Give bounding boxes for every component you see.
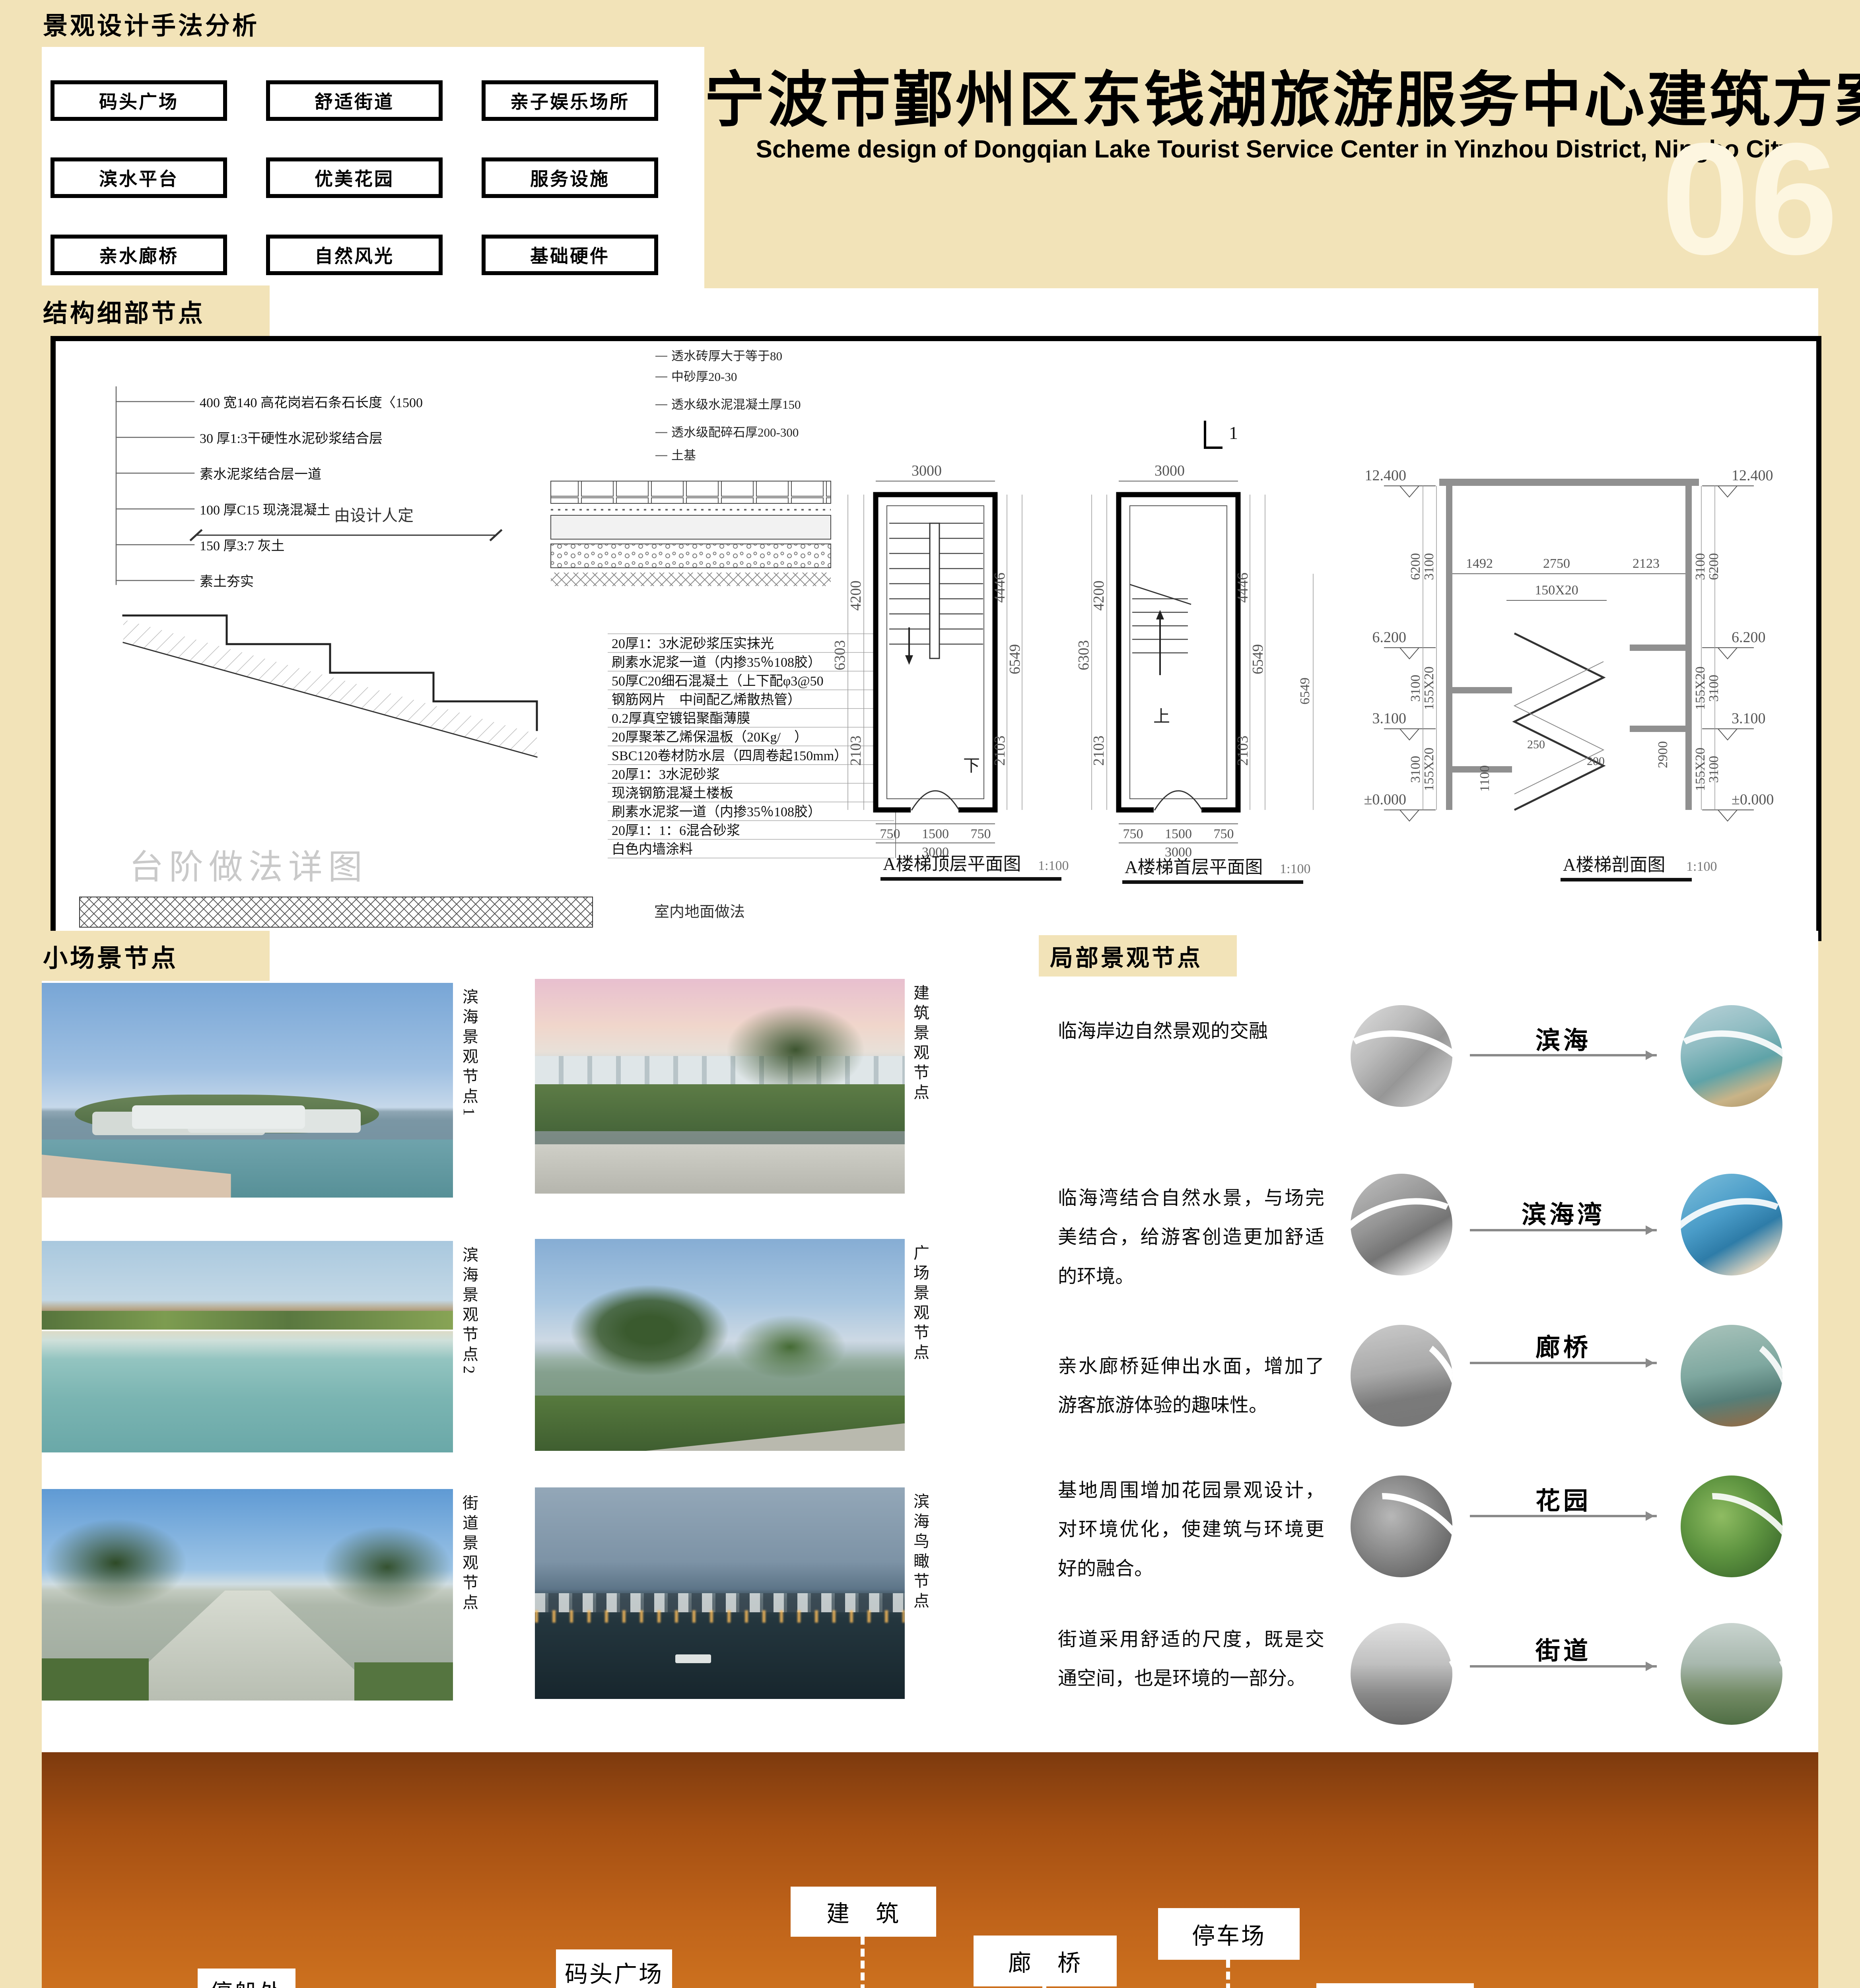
floor-layer-8: 20厚1：3水泥砂浆 [612, 767, 720, 782]
tag-wharf-plaza: 码头广场 [51, 80, 227, 121]
pano-label-park: 公 园 [1316, 1983, 1474, 1988]
level: ±0.000 [1732, 791, 1774, 808]
thumb-bw-garden [1351, 1475, 1452, 1577]
shore-lights [535, 1610, 905, 1623]
tree-2 [712, 1303, 868, 1392]
dim: 4446 [991, 573, 1008, 603]
thumb-bw-street [1351, 1623, 1452, 1725]
plan-top-label: A楼梯顶层平面图 [883, 854, 1021, 874]
level: 6.200 [1372, 629, 1407, 646]
local-text-4: 基地周围增加花园景观设计，对环境优化，使建筑与环境更好的融合。 [1058, 1471, 1324, 1588]
dim: 150X20 [1535, 583, 1578, 598]
dim: 2103 [1234, 736, 1251, 766]
thumb-color-bay [1681, 1174, 1782, 1276]
tag-infrastructure: 基础硬件 [482, 235, 658, 275]
render-seaside-node-2 [42, 1241, 453, 1452]
scene-caption-4: 建筑景观节点 [908, 984, 931, 1104]
section-label: A楼梯剖面图 [1563, 855, 1666, 875]
section-scale: 1:100 [1686, 859, 1717, 874]
dim: 6549 [1298, 678, 1312, 705]
local-label-3: 廊桥 [1470, 1327, 1657, 1363]
sunset-panorama [42, 1752, 1818, 1988]
floor-layer-4: 钢筋网片 中间配乙烯散热管） [612, 692, 801, 707]
tag-garden: 优美花园 [266, 157, 443, 198]
local-label-5: 街道 [1470, 1631, 1657, 1666]
tag-natural-scenery: 自然风光 [266, 235, 443, 275]
arrow-5 [1470, 1665, 1657, 1668]
curve [1351, 1623, 1452, 1725]
dim: 3100 [1422, 553, 1436, 580]
section-cut-mark: 1 [1229, 423, 1238, 443]
tag-comfort-street: 舒适街道 [266, 80, 443, 121]
arrow-4 [1470, 1515, 1657, 1517]
floor-layer-11: 20厚1：1：6混合砂浆 [612, 823, 740, 838]
dim: 2103 [1090, 736, 1107, 766]
level: 3.100 [1732, 710, 1766, 727]
lawn-left [42, 1658, 149, 1701]
floor-layer-5: 0.2厚真空镀铝聚酯薄膜 [612, 711, 750, 726]
dim: 6303 [832, 640, 848, 670]
leader-line [1042, 1986, 1046, 1988]
dim: 155X20 [1422, 747, 1436, 791]
thumb-bw-bay [1351, 1174, 1452, 1276]
local-text-3: 亲水廊桥延伸出水面，增加了游客旅游体验的趣味性。 [1058, 1347, 1324, 1425]
step-layer-4: 100 厚C15 现浇混凝土 [200, 503, 330, 518]
pave-layer-3: 透水级水泥混凝土厚150 [671, 398, 801, 412]
dim: 6303 [1075, 640, 1092, 670]
structure-drawings: 400 宽140 高花岗岩石条石长度〈1500 30 厚1:3干硬性水泥砂浆结合… [56, 341, 1816, 936]
hedge [42, 1311, 453, 1330]
dim: 6549 [1007, 644, 1023, 674]
pavement-detail-drawing: 透水砖厚大于等于80 中砂厚20-30 透水级水泥混凝土厚150 透水级配碎石厚… [551, 349, 831, 586]
dim: 1100 [1477, 765, 1492, 792]
dim: 4200 [1090, 580, 1107, 611]
scene-caption-6: 滨海鸟瞰节点 [908, 1493, 931, 1612]
dim: 155X20 [1693, 666, 1708, 710]
thumb-color-street [1681, 1623, 1782, 1725]
presentation-board: 景观设计手法分析 码头广场 舒适街道 亲子娱乐场所 滨水平台 优美花园 服务设施… [0, 0, 1860, 1988]
dim: 2123 [1633, 556, 1660, 571]
floor-layer-12: 白色内墙涂料 [612, 842, 693, 857]
level: ±0.000 [1364, 791, 1406, 808]
floor-layer-3: 50厚C20细石混凝土（上下配φ3@50 [612, 674, 824, 689]
plan-first-label: A楼梯首层平面图 [1125, 857, 1263, 877]
strip [42, 288, 1818, 336]
span-label: 由设计人定 [334, 507, 414, 524]
stair-plan-first: 上 3000 1 6303 4200 2103 4446 6549 2103 7… [1075, 421, 1266, 860]
step-layer-1: 400 宽140 高花岗岩石条石长度〈1500 [200, 395, 423, 410]
pave-layer-2: 中砂厚20-30 [671, 370, 737, 384]
level: 6.200 [1732, 629, 1766, 646]
road [535, 1144, 905, 1194]
curve [1681, 1013, 1782, 1107]
structure-section-title: 结构细部节点 [0, 285, 270, 336]
pano-label-corridor: 廊 桥 [974, 1936, 1117, 1986]
dim: 3100 [1408, 756, 1423, 783]
title-block: 宁波市鄞州区东钱湖旅游服务中心建筑方案设计 Scheme design of D… [704, 0, 1860, 288]
analysis-button-grid: 码头广场 舒适街道 亲子娱乐场所 滨水平台 优美花园 服务设施 亲水廊桥 自然风… [42, 47, 704, 288]
floor-layer-7: SBC120卷材防水层（四周卷起150mm） [612, 748, 847, 763]
render-street-node [42, 1489, 453, 1701]
arrow-3 [1470, 1362, 1657, 1364]
plan-first-scale: 1:100 [1280, 862, 1310, 876]
palm-right [297, 1510, 453, 1624]
dim: 2900 [1656, 741, 1670, 768]
dim: 6200 [1408, 553, 1423, 580]
scenes-title-text: 小场景节点 [43, 938, 178, 974]
floor-caption: 室内地面做法 [654, 904, 745, 920]
page-number: 06 [1661, 119, 1838, 278]
dim: 200 [1587, 755, 1605, 768]
thumb-bw-seaside [1351, 1005, 1452, 1107]
dim: 6549 [1250, 644, 1266, 674]
step-layer-3: 素水泥浆结合层一道 [200, 467, 321, 482]
scene-caption-2: 滨海景观节点2 [457, 1246, 480, 1378]
tree-band [535, 1084, 905, 1132]
scene-caption-3: 街道景观节点 [457, 1495, 480, 1614]
leader-line [861, 1937, 865, 1988]
curve [1351, 1178, 1452, 1276]
dim: 250 [1527, 738, 1545, 751]
floor-layer-10: 刷素水泥浆一道（内掺35％108胶） [612, 804, 821, 819]
dim: 2103 [847, 736, 864, 766]
city-silhouette [535, 1593, 905, 1612]
dim: 155X20 [1422, 666, 1436, 710]
curve [1351, 1325, 1452, 1427]
floor-layer-2: 刷素水泥浆一道（内掺35％108胶） [612, 655, 821, 670]
step-layer-5: 150 厚3:7 灰土 [200, 538, 284, 553]
dim: 1500 [922, 827, 949, 841]
dim: 3100 [1706, 675, 1721, 702]
plan-first-direction: 上 [1153, 708, 1170, 726]
palm-left [42, 1502, 214, 1625]
analysis-section-title: 景观设计手法分析 [0, 0, 747, 47]
pano-label-wharf-plaza: 码头广场 [556, 1949, 672, 1988]
step-layer-2: 30 厚1:3干硬性水泥砂浆结合层 [200, 431, 383, 446]
curve [1681, 1178, 1782, 1276]
arrow-1 [1470, 1054, 1657, 1056]
dim: 3100 [1408, 675, 1423, 702]
step-detail-drawing: 400 宽140 高花岗岩石条石长度〈1500 30 厚1:3干硬性水泥砂浆结合… [80, 387, 593, 927]
level: 12.400 [1365, 467, 1407, 484]
scene-caption-1: 滨海景观节点1 [457, 988, 480, 1120]
dim: 4446 [1234, 573, 1251, 603]
scenes-section-title: 小场景节点 [0, 931, 270, 981]
dim: 2103 [991, 736, 1008, 766]
curve [1351, 1475, 1452, 1577]
curve [1681, 1623, 1782, 1725]
local-label-2: 滨海湾 [1470, 1194, 1657, 1230]
dim: 750 [1214, 827, 1234, 841]
dim: 3100 [1706, 756, 1721, 783]
pave-layer-4: 透水级配碎石厚200-300 [671, 425, 799, 439]
drawing-labels: A楼梯顶层平面图 1:100 A楼梯首层平面图 1:100 A楼梯剖面图 1:1… [880, 854, 1717, 884]
buildings [132, 1105, 305, 1129]
curve [1681, 1475, 1782, 1577]
thumb-color-seaside [1681, 1005, 1782, 1107]
boat [675, 1654, 711, 1663]
tag-waterfront-deck: 滨水平台 [51, 157, 227, 198]
floor-layer-1: 20厚1：3水泥砂浆压实抹光 [612, 636, 774, 651]
render-plaza-node [535, 1239, 905, 1451]
tag-family-fun: 亲子娱乐场所 [482, 80, 658, 121]
curve [1681, 1325, 1782, 1427]
pano-label-parking: 停车场 [1158, 1908, 1300, 1960]
railing [42, 1330, 453, 1331]
dim: 3000 [912, 462, 942, 479]
dim: 3000 [1154, 462, 1185, 479]
floor-buildup-list: 20厚1：3水泥砂浆压实抹光 刷素水泥浆一道（内掺35％108胶） 50厚C20… [608, 634, 896, 920]
curve [1351, 1013, 1452, 1107]
local-text-5: 街道采用舒适的尺度，既是交通空间，也是环境的一部分。 [1058, 1620, 1324, 1699]
render-building-node [535, 979, 905, 1194]
scene-caption-5: 广场景观节点 [908, 1244, 931, 1364]
leader-line [1226, 1960, 1230, 1988]
structure-detail-panel: 400 宽140 高花岗岩石条石长度〈1500 30 厚1:3干硬性水泥砂浆结合… [51, 336, 1821, 941]
render-aerial-dusk-node [535, 1487, 905, 1699]
dim: 2750 [1543, 556, 1570, 571]
thumb-color-corridor [1681, 1325, 1782, 1427]
dim: 750 [880, 827, 900, 841]
dim: 750 [1123, 827, 1143, 841]
plan-top-scale: 1:100 [1038, 858, 1069, 873]
arrow-2 [1470, 1229, 1657, 1231]
local-title-text: 局部景观节点 [1050, 939, 1203, 973]
local-text-2: 临海湾结合自然水景，与场完美结合，给游客创造更加舒适的环境。 [1058, 1179, 1324, 1296]
dim: 750 [971, 827, 991, 841]
pano-label-building: 建 筑 [791, 1887, 936, 1937]
level: 3.100 [1372, 710, 1407, 727]
dim: 1500 [1165, 827, 1192, 841]
dim: 1492 [1466, 556, 1493, 571]
thumb-color-garden [1681, 1475, 1782, 1577]
structure-title-text: 结构细部节点 [43, 293, 205, 329]
tag-water-corridor: 亲水廊桥 [51, 235, 227, 275]
pave-layer-1: 透水砖厚大于等于80 [671, 349, 782, 363]
render-seaside-node-1 [42, 983, 453, 1198]
floor-layer-6: 20厚聚苯乙烯保温板（20Kg/ ） [612, 730, 808, 745]
tag-service-facility: 服务设施 [482, 157, 658, 198]
plan-top-direction: 下 [963, 757, 980, 775]
step-layer-6: 素土夯实 [200, 574, 254, 589]
dim: 6200 [1706, 553, 1721, 580]
local-label-1: 滨海 [1470, 1020, 1657, 1056]
step-watermark: 台阶做法详图 [129, 848, 368, 886]
local-section-title: 局部景观节点 [1039, 935, 1237, 977]
local-text-1: 临海岸边自然景观的交融 [1058, 1012, 1324, 1051]
thumb-bw-corridor [1351, 1325, 1452, 1427]
level: 12.400 [1732, 467, 1773, 484]
dim: 155X20 [1693, 747, 1708, 791]
analysis-title-text: 景观设计手法分析 [43, 6, 259, 41]
local-label-4: 花园 [1470, 1481, 1657, 1516]
stair-section-drawing: 12.400 6.200 3.100 ±0.000 12.400 6.200 [1298, 467, 1774, 821]
lawn-right [354, 1662, 453, 1701]
stair-plan-top: 下 3000 6303 4200 2103 4446 6549 2103 750… [832, 462, 1023, 860]
floor-layer-9: 现浇钢筋混凝土楼板 [612, 786, 733, 801]
pave-layer-5: 土基 [671, 448, 696, 462]
pano-label-boat-dock: 停船处 [198, 1969, 295, 1988]
dim: 4200 [847, 580, 864, 611]
dim: 3100 [1693, 553, 1708, 580]
